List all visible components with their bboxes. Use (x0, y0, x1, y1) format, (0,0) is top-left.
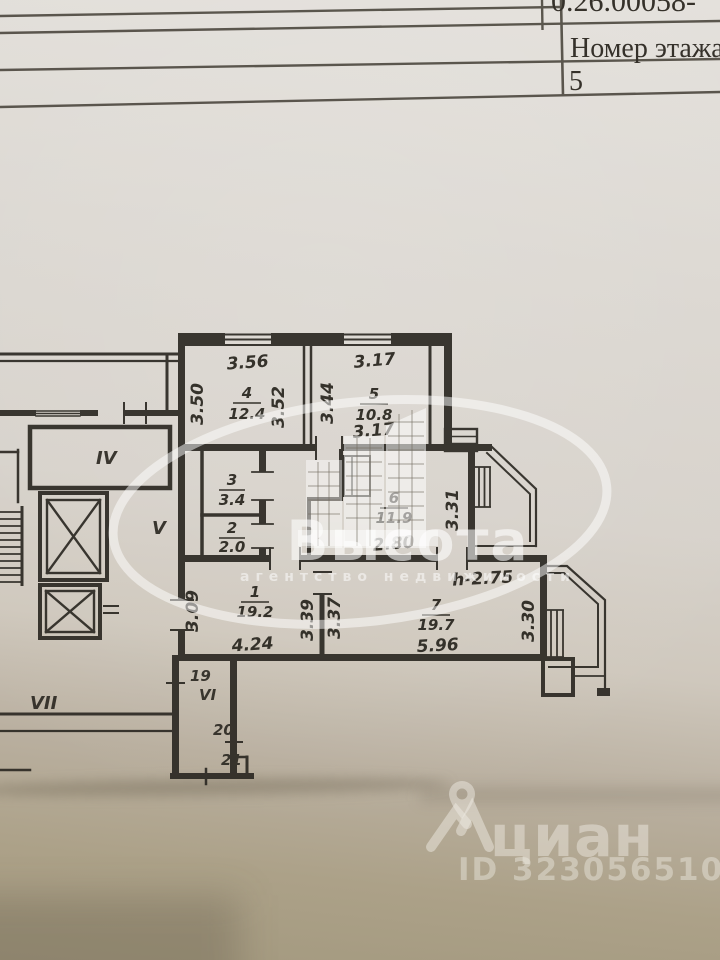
zone-vi: VI (199, 686, 217, 704)
zone-v: V (152, 518, 168, 539)
cian-listing-id: ID 323056510 (458, 852, 720, 888)
zone-20: 20 (213, 721, 234, 739)
room-7-area: 19.7 (417, 616, 455, 634)
room-2-number: 2 (227, 519, 237, 537)
room-3-number: 3 (227, 471, 237, 489)
document-number-fragment: 0.26.00058- (551, 0, 696, 18)
floor-table: 0.26.00058- Номер этажа 5 (551, 0, 720, 97)
dim-3-50: 3.50 (188, 383, 208, 425)
elevator-shafts (40, 493, 107, 638)
stairs (0, 506, 22, 586)
watermark-agency-name: Высота (286, 509, 529, 573)
floor-value: 5 (569, 66, 583, 97)
dim-3-17-top: 3.17 (353, 349, 397, 373)
scan-drawing: 0.26.00058- Номер этажа 5 (0, 0, 720, 960)
zone-19: 19 (190, 667, 211, 685)
dim-3-56: 3.56 (226, 352, 269, 375)
dim-4-24: 4.24 (230, 634, 274, 657)
watermark-cian: циан ID 323056510 (431, 781, 720, 888)
room-1-number: 1 (250, 583, 260, 601)
dim-3-37: 3.37 (325, 597, 345, 639)
room-3-label: 3 3.4 (219, 471, 246, 509)
floor-plan-photo: 0.26.00058- Номер этажа 5 (0, 0, 720, 960)
zone-iv: IV (96, 448, 119, 469)
room-2-label: 2 2.0 (219, 519, 246, 556)
left-window (36, 411, 80, 416)
floor-row-label: Номер этажа (570, 33, 720, 64)
zone-vii: VII (30, 693, 58, 714)
zone-21: 21 (221, 751, 242, 769)
room-3-area: 3.4 (219, 491, 246, 509)
dim-5-96: 5.96 (416, 635, 459, 657)
dim-3-30: 3.30 (519, 600, 539, 642)
room-2-area: 2.0 (219, 538, 246, 556)
dim-3-52: 3.52 (269, 386, 289, 428)
person-icon (431, 809, 489, 847)
adjacent-section-walls (0, 354, 181, 770)
room-4-number: 4 (241, 384, 252, 402)
watermark-agency-tagline: агентство недвижимости (240, 569, 576, 585)
